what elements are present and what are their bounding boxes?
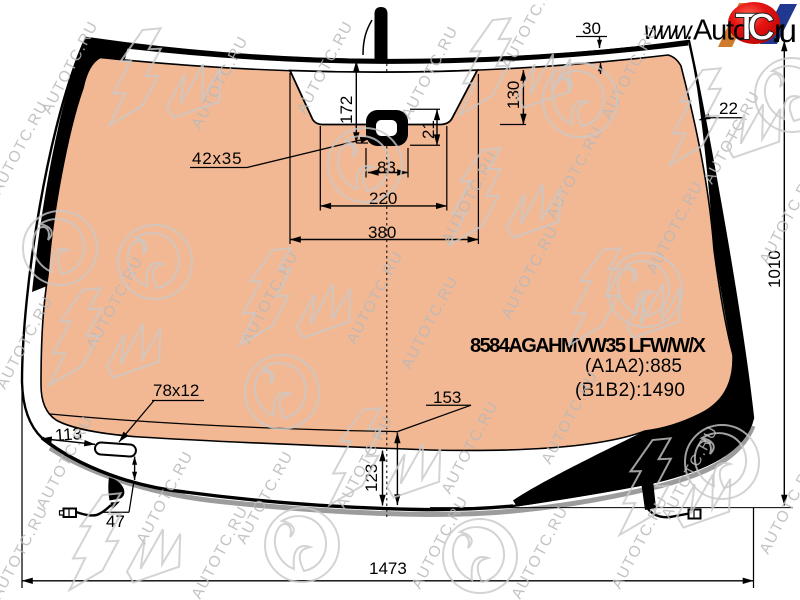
svg-text:380: 380: [368, 223, 396, 242]
svg-text:TC: TC: [735, 7, 775, 49]
svg-text:21: 21: [419, 120, 438, 139]
svg-text:8584AGAHMVW35 LFW/W/X: 8584AGAHMVW35 LFW/W/X: [470, 335, 707, 357]
svg-text:130: 130: [504, 81, 523, 109]
svg-text:30: 30: [582, 19, 601, 38]
svg-text:172: 172: [337, 96, 356, 124]
svg-text:78x12: 78x12: [153, 381, 199, 400]
svg-text:153: 153: [433, 388, 461, 407]
svg-text:220: 220: [369, 189, 397, 208]
svg-text:42x35: 42x35: [192, 149, 242, 168]
svg-text:1473: 1473: [369, 559, 407, 578]
svg-text:(A1A2):885: (A1A2):885: [585, 356, 682, 377]
